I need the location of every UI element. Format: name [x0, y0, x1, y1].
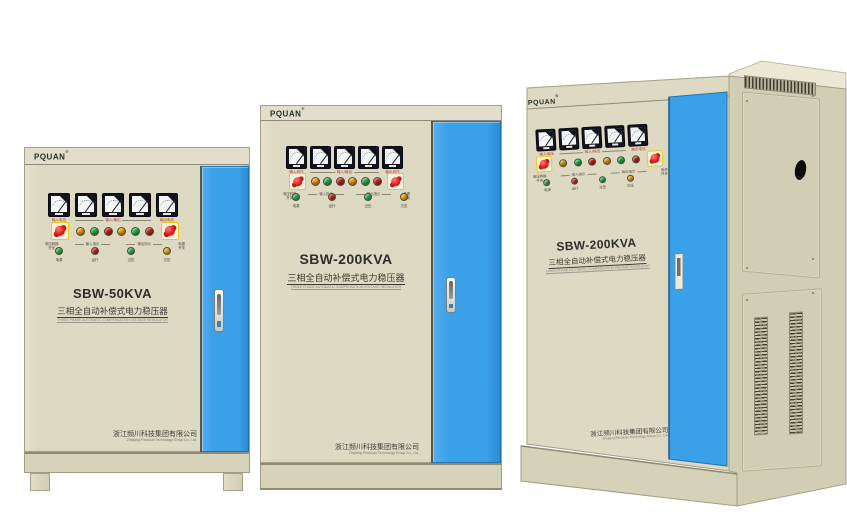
- side-louver-vent: [789, 312, 803, 435]
- meter-face: [607, 128, 622, 143]
- analog-meter: [129, 193, 151, 217]
- meter-face: [385, 149, 400, 164]
- indicator-label: 过压: [595, 185, 611, 191]
- knob: [648, 151, 663, 166]
- analog-meter: [358, 146, 379, 169]
- knob-label: 电源 开关: [178, 242, 185, 250]
- company-name-en: Zhejiang Pinchuan Technology Group Co., …: [301, 452, 419, 456]
- company-name: 浙江频川科技集团有限公司 Zhejiang Pinchuan Technolog…: [85, 431, 197, 443]
- meter-row: [286, 146, 403, 169]
- pilot-light: [104, 227, 113, 236]
- pilot-light-group: [311, 177, 382, 186]
- voltage-selector-knob: [536, 156, 553, 173]
- indicator-label: 欠压: [159, 258, 175, 263]
- subtitle-cn-text: 三相全自动补偿式电力稳压器: [287, 273, 404, 285]
- indicator-light: [543, 179, 550, 186]
- pilot-light: [348, 177, 357, 186]
- indicator-light-row: [292, 193, 408, 201]
- model-name: SBW-200KVA: [261, 251, 431, 267]
- group-label: 输入指示: [75, 242, 111, 246]
- knob: [388, 174, 403, 189]
- pilot-light: [90, 227, 99, 236]
- analog-meter: [156, 193, 178, 217]
- meter-face: [538, 132, 553, 147]
- indicator-label-row: 电源运行过压欠压: [288, 204, 412, 209]
- pilot-light-group: [76, 227, 154, 236]
- indicator-label: 电源: [288, 204, 304, 209]
- pilot-light: [361, 177, 370, 186]
- cabinet-middle-door: [431, 121, 501, 463]
- voltage-selector-knob: [51, 222, 69, 240]
- indicator-light: [328, 193, 336, 201]
- pilot-light: [131, 227, 140, 236]
- cabinet-middle: PQUAN® 输入电压 输入/输出 输出电压: [260, 105, 502, 490]
- pilot-light: [632, 155, 640, 163]
- cabinet-middle-plinth: [260, 463, 502, 490]
- cabinet-left-body: PQUAN® 输入电压 输入/输出 输出电压: [24, 147, 250, 452]
- knob-label: 电源 开关: [661, 168, 668, 176]
- subtitle-cn-text: 三相全自动补偿式电力稳压器: [57, 306, 168, 318]
- subtitle-en-text: THREE PHASE AUTOMATIC COMPENSATION VOLTA…: [57, 318, 168, 323]
- cabinet-left: PQUAN® 输入电压 输入/输出 输出电压: [24, 147, 250, 491]
- subtitle-cn: 三相全自动补偿式电力稳压器: [261, 271, 431, 284]
- indicator-label: 运行: [87, 258, 103, 263]
- company-name: 浙江频川科技集团有限公司 Zhejiang Pinchuan Technolog…: [301, 444, 419, 456]
- company-name: 浙江频川科技集团有限公司 Zhejiang Pinchuan Technolog…: [555, 427, 668, 444]
- power-switch-knob: [387, 173, 404, 190]
- cabinet-left-door: [200, 166, 249, 452]
- voltage-selector-knob: [289, 173, 306, 190]
- pilot-light-group: [559, 155, 640, 167]
- indicator-label: 电源: [51, 258, 67, 263]
- registered-mark: ®: [65, 149, 68, 154]
- meter-face: [289, 149, 304, 164]
- meter-face: [159, 196, 175, 212]
- indicator-label-row: 电源运行过压欠压: [51, 258, 175, 263]
- registered-mark: ®: [555, 93, 559, 98]
- pilot-light: [336, 177, 345, 186]
- analog-meter: [535, 129, 556, 152]
- control-row: [289, 173, 404, 190]
- analog-meter: [558, 127, 579, 150]
- pilot-light: [145, 227, 154, 236]
- cabinet-middle-door-handle: [446, 277, 456, 313]
- indicator-label: 运行: [324, 204, 340, 209]
- indicator-label: 运行: [567, 186, 583, 192]
- brand-logo: PQUAN®: [34, 146, 69, 164]
- meter-face: [78, 196, 94, 212]
- pilot-light: [311, 177, 320, 186]
- cabinet-right-front-content: PQUAN® 输入电压 输入/输出 输出电压 电压转换 开关 输入指示: [517, 71, 739, 477]
- indicator-light: [292, 193, 300, 201]
- side-upper-panel: [742, 92, 820, 279]
- analog-meter: [102, 193, 124, 217]
- indicator-light: [627, 175, 634, 182]
- pilot-light: [373, 177, 382, 186]
- analog-meter: [286, 146, 307, 169]
- indicator-label: 过压: [123, 258, 139, 263]
- brand-logo-text: PQUAN: [528, 99, 556, 107]
- brand-logo: PQUAN®: [270, 103, 305, 121]
- meter-face: [313, 149, 328, 164]
- product-photo-stage: PQUAN® 输入电压 输入/输出 输出电压: [0, 0, 847, 525]
- indicator-light: [364, 193, 372, 201]
- cabinet-middle-header: PQUAN®: [261, 106, 501, 121]
- analog-meter: [581, 126, 602, 149]
- indicator-label: 电源: [539, 188, 555, 194]
- registered-mark: ®: [301, 106, 304, 111]
- indicator-light: [599, 176, 606, 183]
- analog-meter: [48, 193, 70, 217]
- company-name-en: Zhejiang Pinchuan Technology Group Co., …: [85, 439, 197, 443]
- meter-face: [337, 149, 352, 164]
- pilot-light: [617, 156, 625, 164]
- analog-meter: [627, 124, 648, 147]
- indicator-label: 过压: [360, 204, 376, 209]
- cabinet-left-plinth: [24, 452, 250, 473]
- subtitle-en: THREE PHASE AUTOMATIC COMPENSATION VOLTA…: [261, 285, 431, 289]
- knob: [162, 223, 178, 239]
- cabinet-middle-body: PQUAN® 输入电压 输入/输出 输出电压: [260, 105, 502, 463]
- cabinet-left-foot: [223, 473, 243, 491]
- meter-face: [361, 149, 376, 164]
- cabinet-left-header: PQUAN®: [25, 148, 249, 165]
- pilot-light: [588, 158, 596, 166]
- knob: [537, 157, 552, 172]
- meter-face: [584, 129, 599, 144]
- group-label: 输出指示: [126, 242, 162, 246]
- model-name: SBW-50KVA: [25, 286, 200, 301]
- pilot-light: [323, 177, 332, 186]
- side-louver-vent: [754, 317, 768, 436]
- indicator-label: 欠压: [396, 204, 412, 209]
- subtitle-en: THREE PHASE AUTOMATIC COMPENSATION VOLTA…: [25, 318, 200, 322]
- knob: [52, 223, 68, 239]
- cabinet-left-foot: [30, 473, 50, 491]
- pilot-light: [573, 158, 581, 166]
- analog-meter: [310, 146, 331, 169]
- meter-face: [51, 196, 67, 212]
- subtitle-en-text: THREE PHASE AUTOMATIC COMPENSATION VOLTA…: [291, 285, 402, 290]
- analog-meter: [604, 125, 625, 148]
- indicator-light-row: [55, 247, 171, 255]
- brand-logo: PQUAN®: [527, 90, 559, 110]
- brand-logo-text: PQUAN: [34, 152, 65, 161]
- indicator-light: [163, 247, 171, 255]
- meter-face: [561, 131, 576, 146]
- subtitle-cn: 三相全自动补偿式电力稳压器: [25, 305, 200, 317]
- analog-meter: [334, 146, 355, 169]
- brand-logo-text: PQUAN: [270, 109, 301, 118]
- indicator-label: 欠压: [622, 183, 638, 189]
- indicator-light: [91, 247, 99, 255]
- pilot-light: [559, 159, 567, 167]
- analog-meter: [382, 146, 403, 169]
- indicator-light: [400, 193, 408, 201]
- meter-face: [105, 196, 121, 212]
- indicator-light: [127, 247, 135, 255]
- meter-face: [132, 196, 148, 212]
- indicator-light: [571, 177, 578, 184]
- knob: [290, 174, 305, 189]
- power-switch-knob: [647, 150, 664, 167]
- power-switch-knob: [161, 222, 179, 240]
- indicator-light: [55, 247, 63, 255]
- meter-group-bracket: 输入/输出: [75, 220, 151, 221]
- control-row: [51, 222, 179, 240]
- meter-face: [630, 127, 645, 142]
- pilot-light: [603, 157, 611, 165]
- cabinet-right: PQUAN® 输入电压 输入/输出 输出电压 电压转换 开关 输入指示: [505, 55, 847, 512]
- pilot-light: [76, 227, 85, 236]
- analog-meter: [75, 193, 97, 217]
- meter-row: [48, 193, 178, 217]
- cabinet-left-door-handle: [214, 289, 224, 332]
- pilot-light: [117, 227, 126, 236]
